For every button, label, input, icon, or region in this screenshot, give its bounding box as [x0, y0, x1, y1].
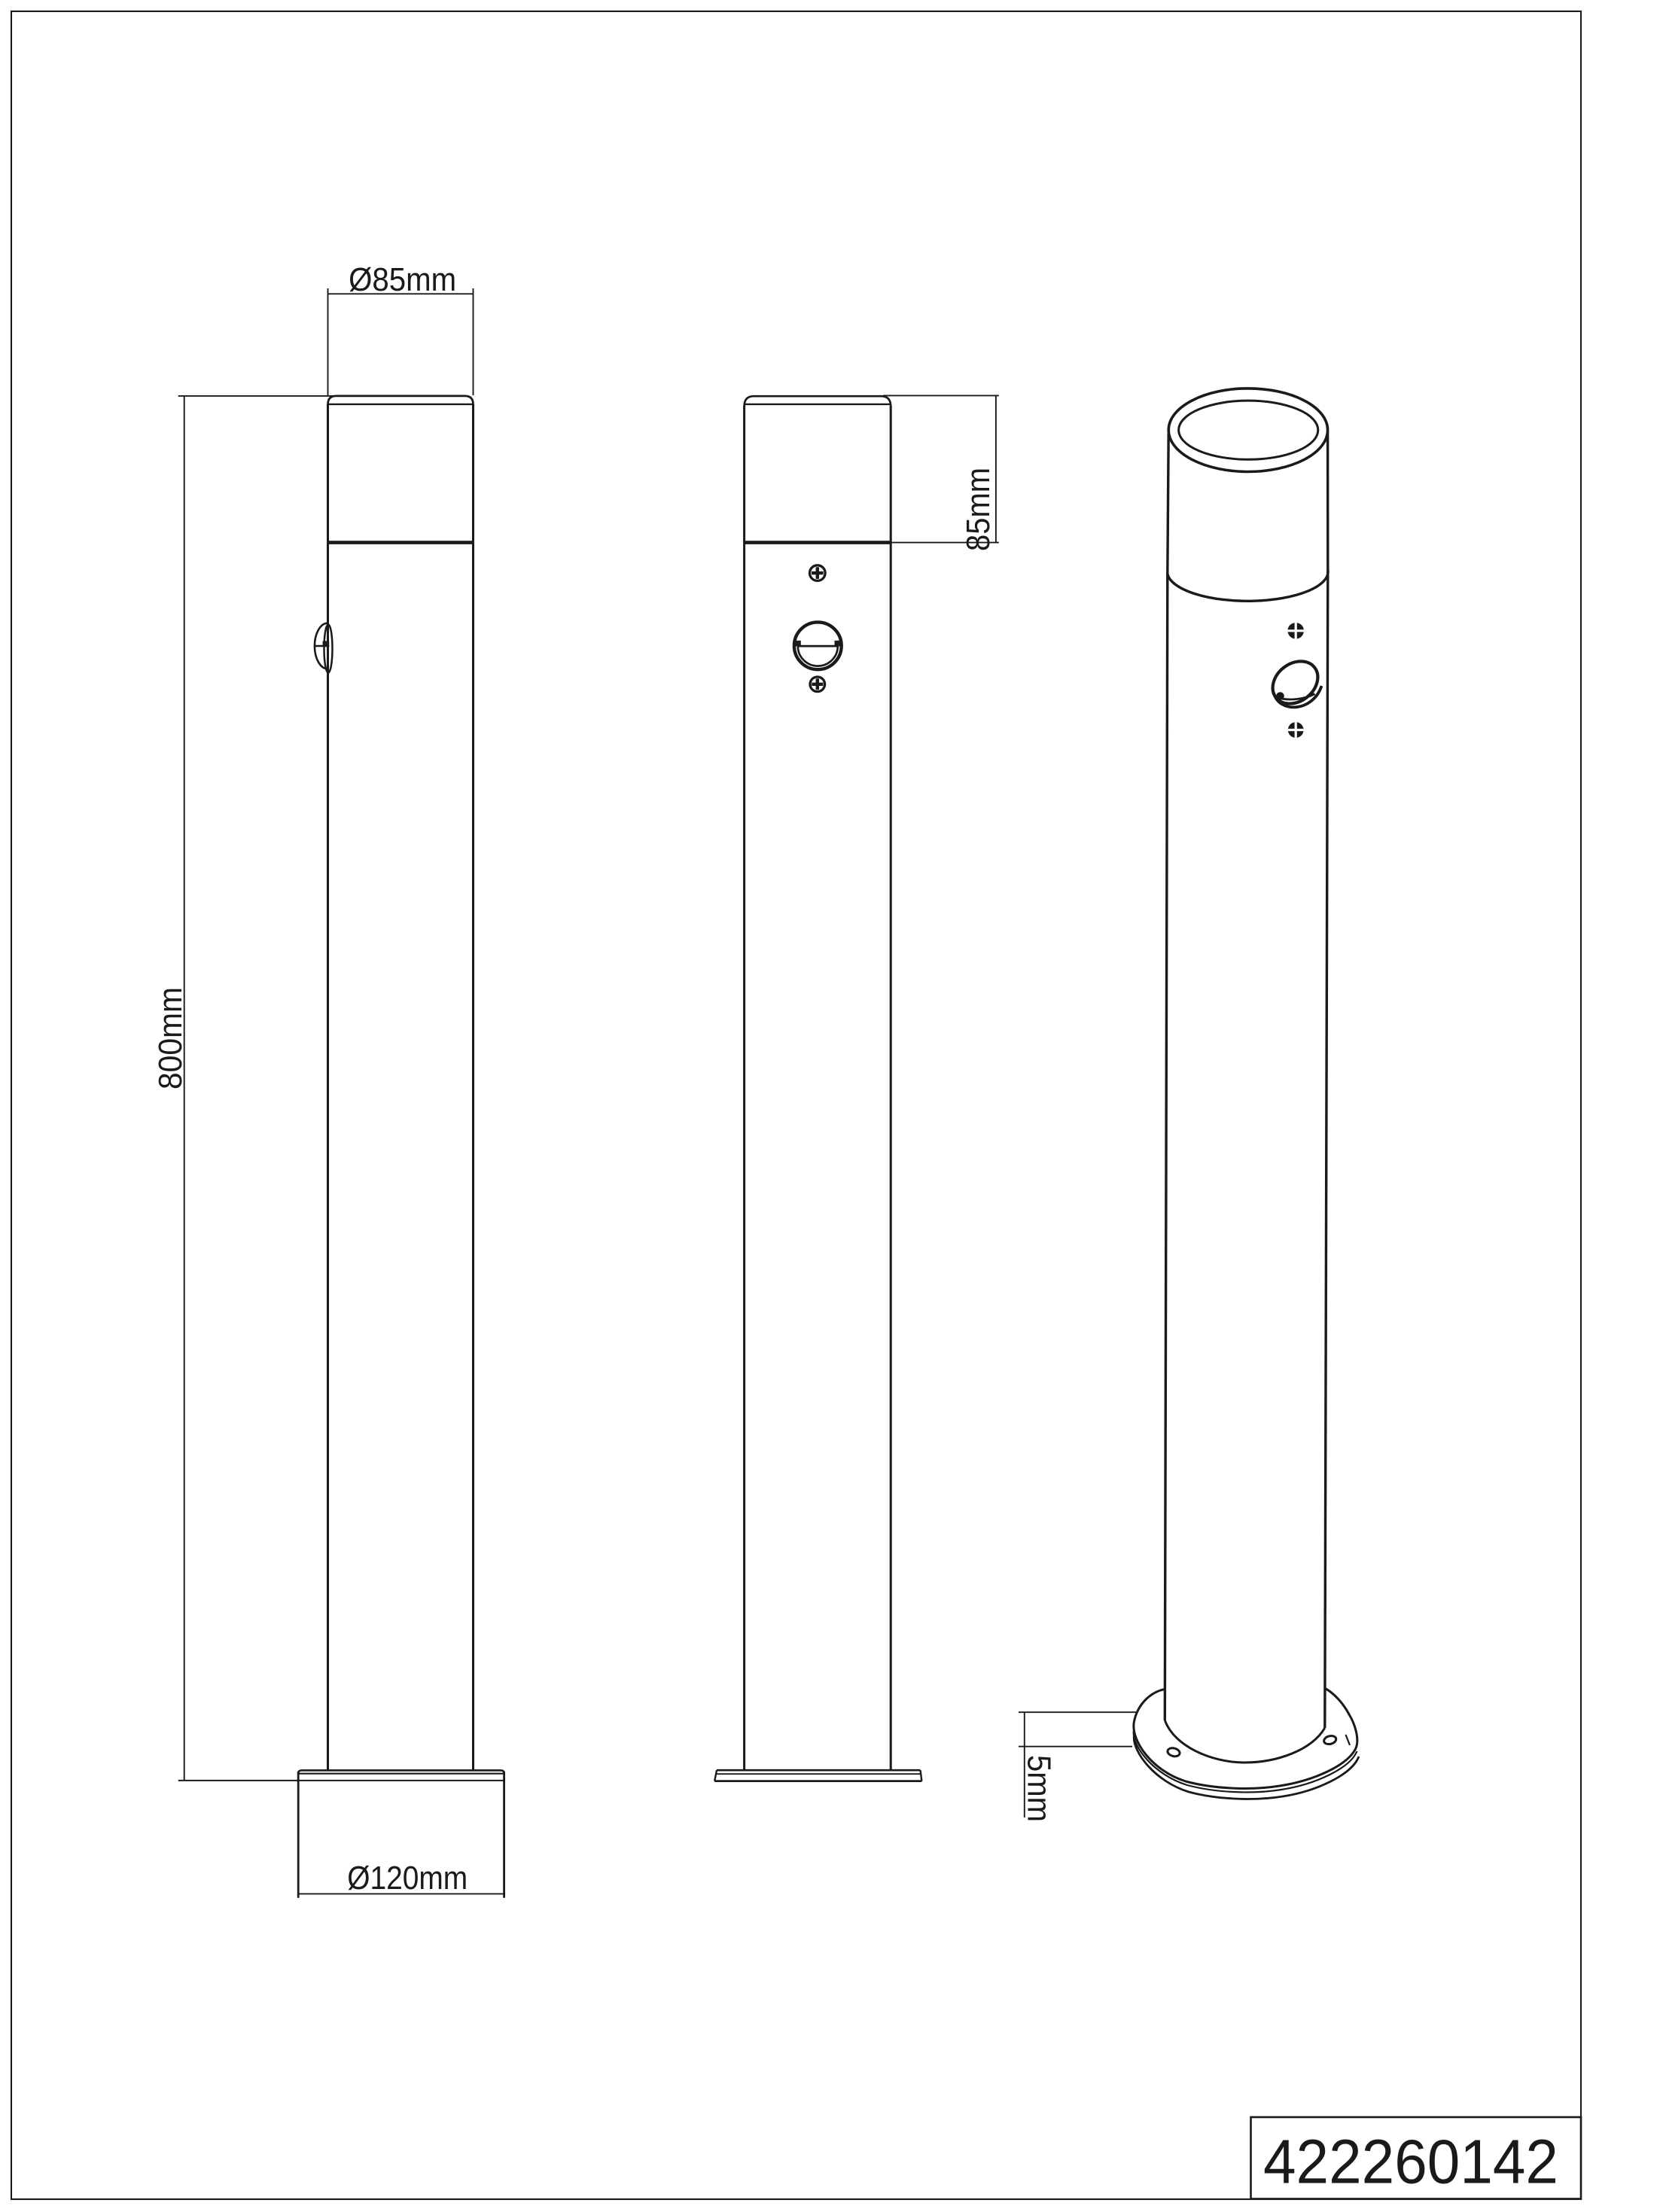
svg-text:800mm: 800mm [153, 987, 189, 1089]
svg-text:Ø120mm: Ø120mm [347, 1860, 468, 1897]
svg-text:5mm: 5mm [1021, 1755, 1057, 1822]
svg-text:Ø85mm: Ø85mm [349, 262, 456, 298]
svg-text:422260142: 422260142 [1263, 2128, 1558, 2197]
svg-text:85mm: 85mm [961, 468, 997, 551]
